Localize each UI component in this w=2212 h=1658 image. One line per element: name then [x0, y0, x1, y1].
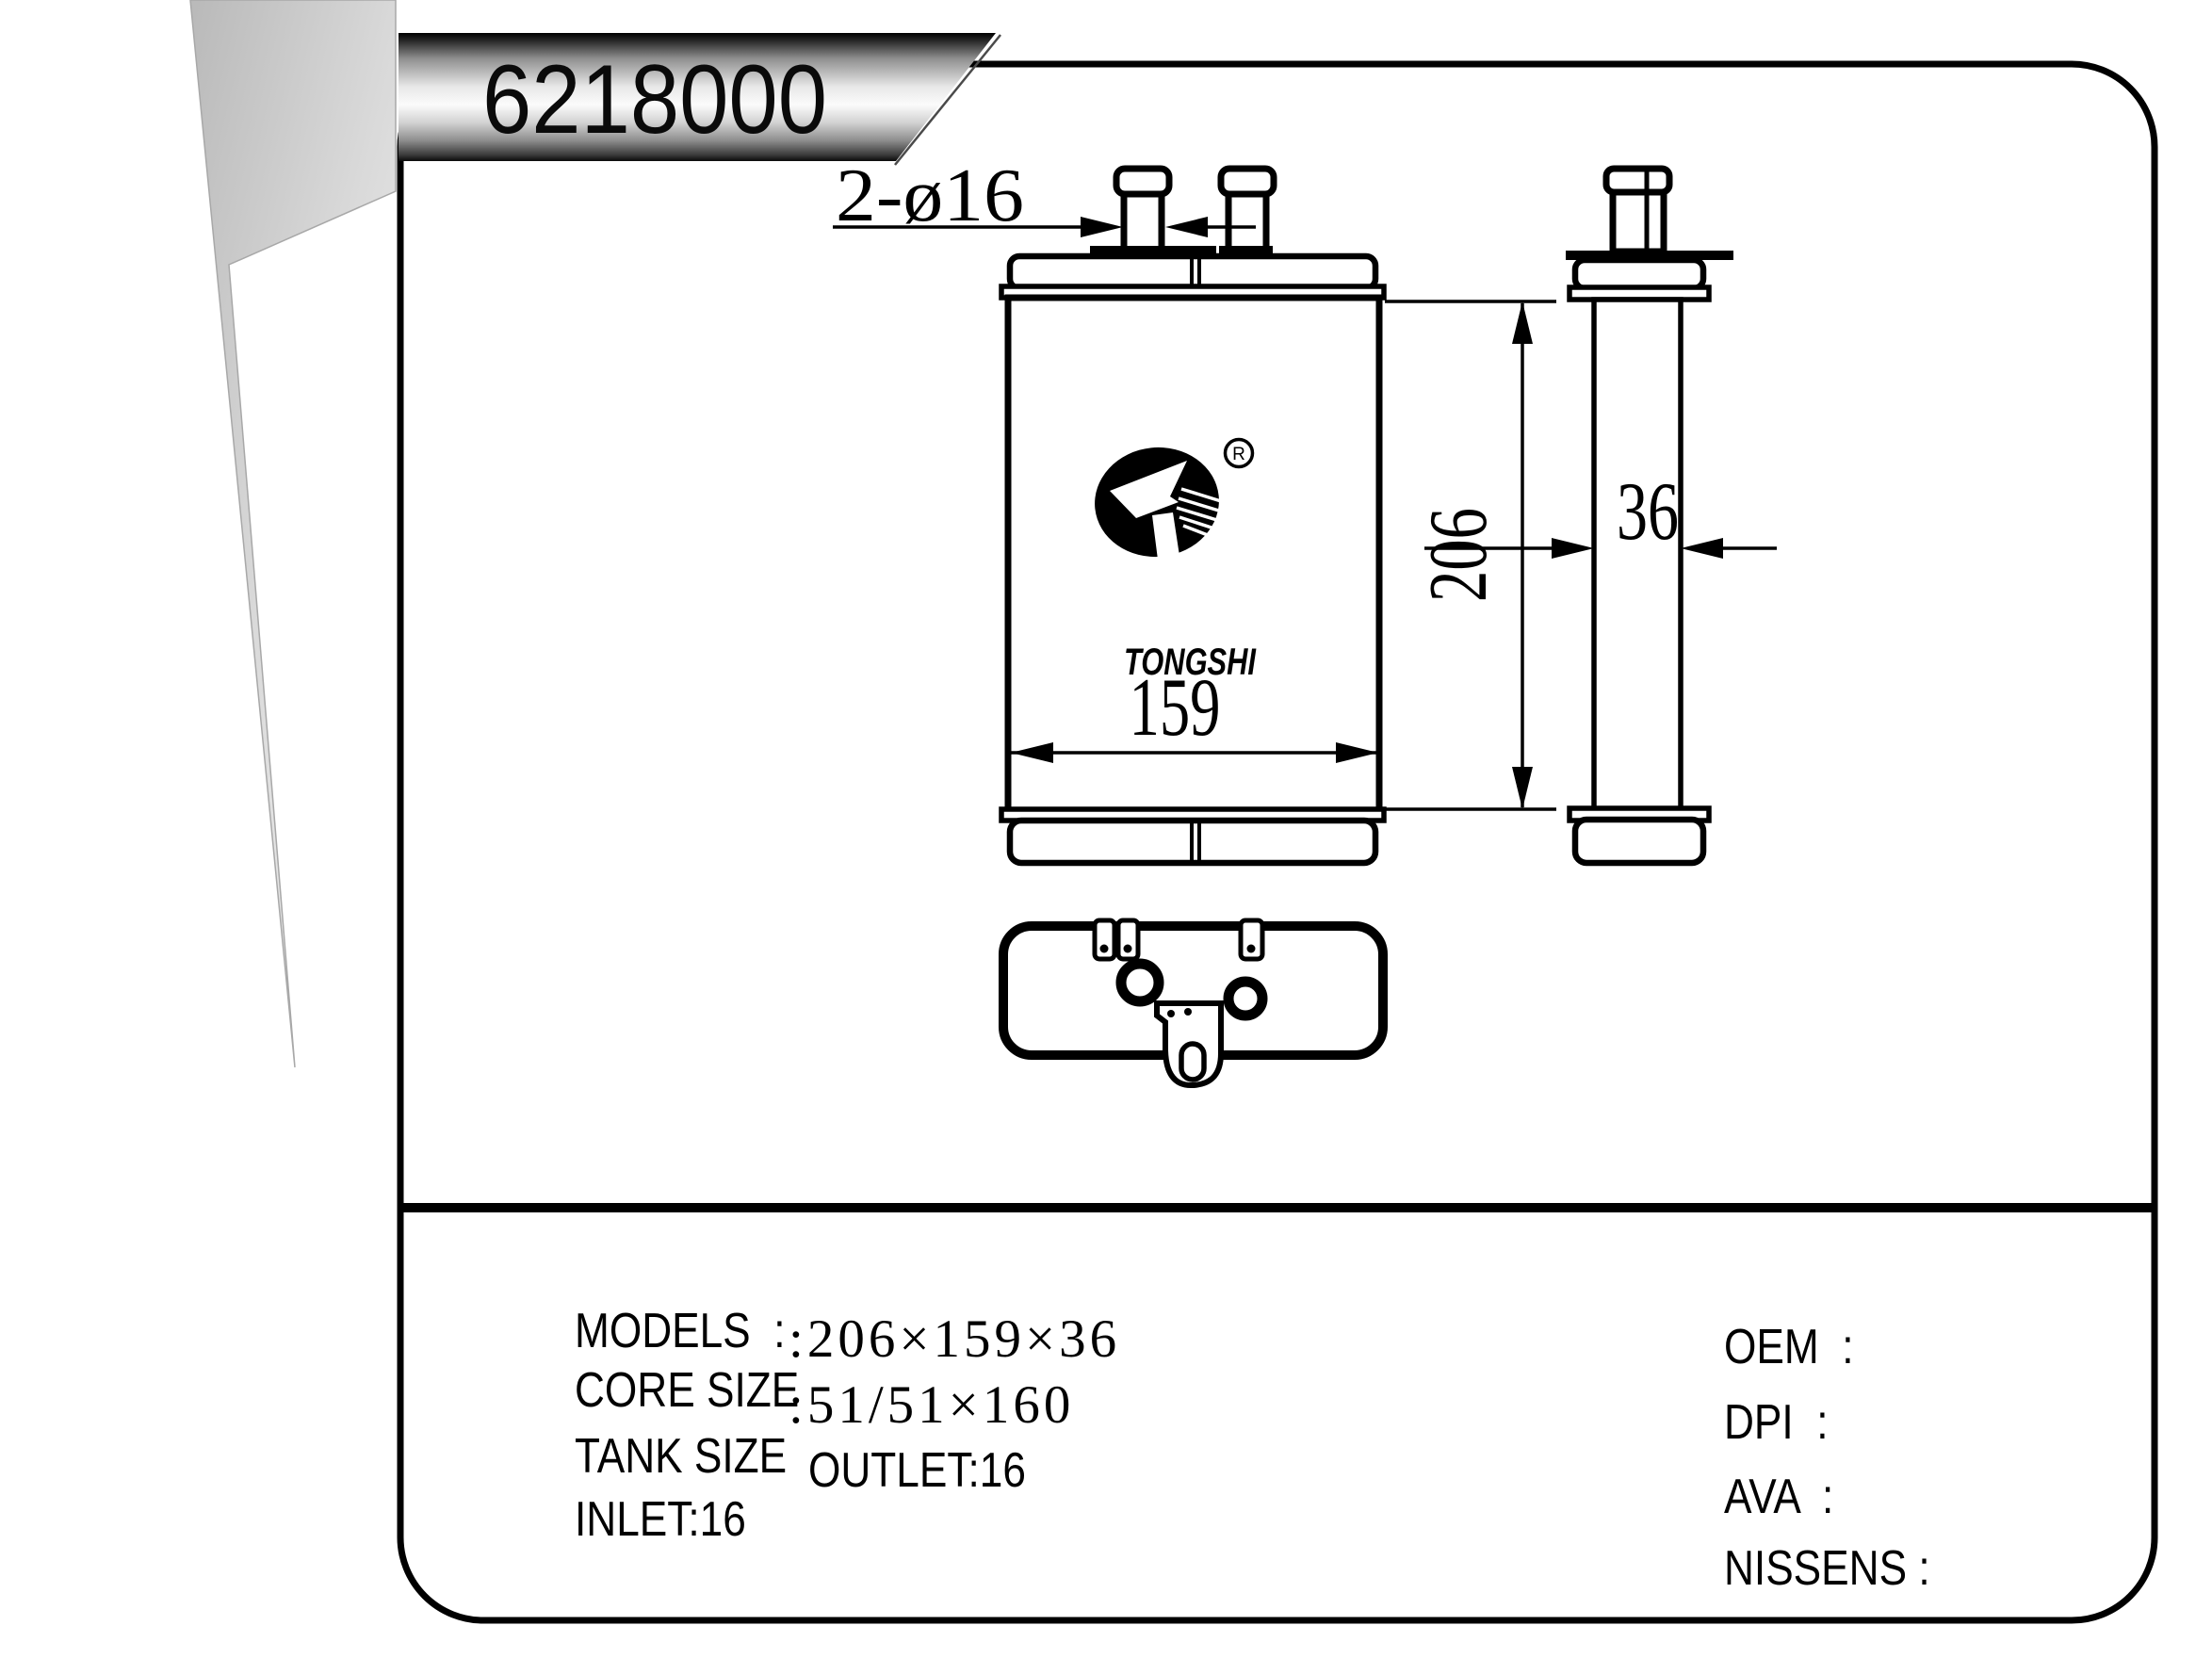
core-size-value: :206×159×36	[789, 1312, 1120, 1366]
brand-name: TONGSHI	[1124, 642, 1257, 683]
spec-row-inlet-outlet: INLET:16 OUTLET:16	[520, 1446, 776, 1642]
dimension-pipe-diameter: 2-ø16	[833, 154, 1256, 237]
corner-wedge-decoration	[190, 0, 396, 1067]
outlet-value: OUTLET:16	[808, 1446, 1026, 1495]
side-pipe-body	[1613, 189, 1664, 252]
bottom-bracket-left-dot1	[1100, 945, 1109, 953]
nissens-label: NISSENS :	[1724, 1544, 1930, 1593]
spec-row-nissens: NISSENS :	[1669, 1495, 1966, 1642]
bottom-bracket-right-prong	[1241, 920, 1262, 959]
bottom-view	[1003, 920, 1383, 1085]
dim-depth-arrow-right	[1552, 538, 1594, 559]
bottom-bracket-left-prong2	[1118, 920, 1138, 959]
dim-pipe-arrow-left	[1165, 217, 1208, 237]
side-bottom-tank	[1575, 820, 1703, 863]
drawing-page: 6218000	[0, 0, 2212, 1658]
front-inlet-pipe-cap	[1116, 169, 1169, 194]
dim-depth-arrow-left	[1681, 538, 1723, 559]
front-inlet-pipe-body	[1124, 188, 1162, 252]
side-pipe-cap	[1606, 169, 1669, 192]
bottom-pipe-hole-right	[1228, 982, 1262, 1016]
bottom-bracket-left-dot2	[1124, 945, 1132, 953]
dimension-core-height: 206	[1385, 301, 1556, 809]
registered-mark: R	[1232, 445, 1245, 464]
dim-height-label: 206	[1413, 508, 1504, 602]
front-outlet-pipe-body	[1228, 188, 1266, 252]
technical-drawing: 6218000	[0, 0, 2212, 1658]
bottom-bracket-right-dot	[1247, 945, 1256, 953]
side-top-tank	[1575, 260, 1703, 288]
bottom-mount-tab-dot2	[1184, 1008, 1192, 1016]
front-outlet-pipe-cap	[1221, 169, 1274, 194]
dim-height-arrow-bottom	[1512, 767, 1533, 809]
tank-size-value: :51/51×160	[789, 1378, 1074, 1432]
bottom-pipe-hole-left	[1121, 964, 1159, 1001]
bottom-mount-tab-slot	[1181, 1044, 1204, 1080]
dim-pipe-label: 2-ø16	[836, 154, 1024, 237]
part-number: 6218000	[482, 45, 827, 154]
inlet-value: INLET:16	[575, 1495, 746, 1544]
dim-depth-label: 36	[1617, 466, 1679, 558]
bottom-mount-tab-dot1	[1167, 1010, 1175, 1017]
title-banner: 6218000	[398, 33, 1000, 165]
bottom-bracket-left-prong1	[1095, 920, 1114, 959]
dim-height-arrow-top	[1512, 301, 1533, 344]
dim-pipe-arrow-right	[1081, 217, 1123, 237]
